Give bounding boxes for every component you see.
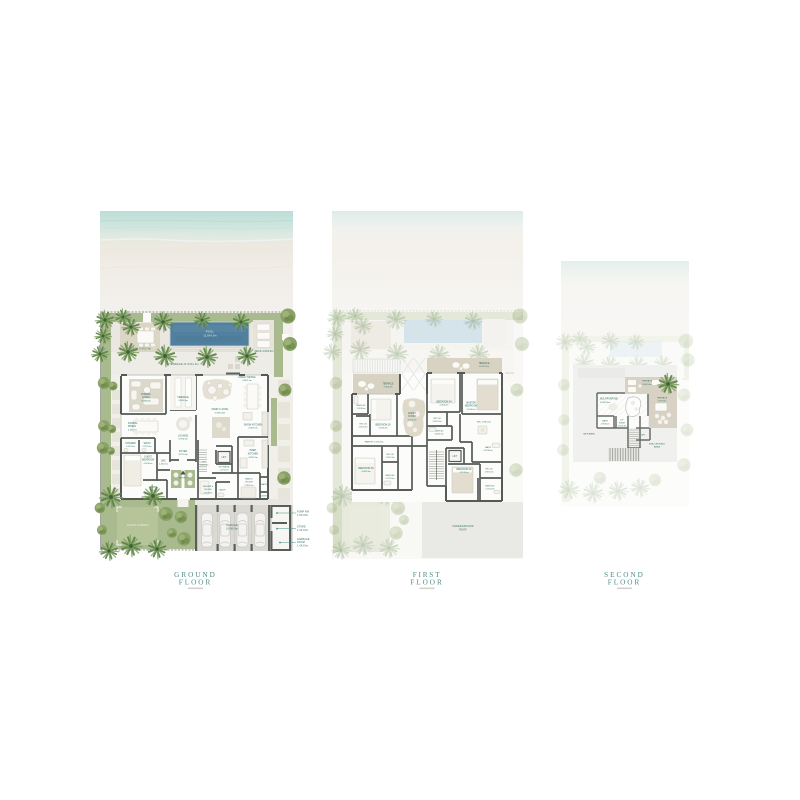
svg-text:2.2X2.8m: 2.2X2.8m [204, 492, 213, 494]
svg-text:1.9X3.0m: 1.9X3.0m [601, 424, 610, 426]
svg-text:3.9X5.8m: 3.9X5.8m [178, 400, 188, 402]
svg-text:POWDER: POWDER [125, 443, 136, 445]
svg-text:FLOOR: FLOOR [608, 579, 642, 587]
svg-text:FAMILY: FAMILY [408, 412, 416, 415]
svg-text:FOYER: FOYER [179, 450, 188, 453]
svg-text:LNDRY: LNDRY [260, 496, 268, 498]
svg-text:TERRACE: TERRACE [479, 362, 490, 365]
svg-text:7.0X2.3m: 7.0X2.3m [384, 387, 393, 389]
svg-text:BEDROOM 05: BEDROOM 05 [358, 468, 374, 470]
svg-text:BATH 02: BATH 02 [486, 485, 495, 488]
svg-text:POOL: POOL [206, 330, 215, 334]
svg-text:1.3X1.8m: 1.3X1.8m [297, 529, 308, 532]
svg-text:FIRST: FIRST [413, 571, 442, 579]
svg-text:2.2X1.6m: 2.2X1.6m [143, 446, 152, 448]
svg-text:AREA: AREA [654, 446, 660, 449]
svg-text:13.0X4.8m: 13.0X4.8m [600, 402, 610, 404]
svg-text:5.5X6.0m: 5.5X6.0m [467, 409, 476, 411]
svg-text:DINING: DINING [128, 426, 136, 428]
svg-text:5.9X11.8m: 5.9X11.8m [215, 412, 226, 414]
svg-text:MASTER: MASTER [466, 402, 476, 405]
svg-text:BEDROOM 04: BEDROOM 04 [436, 402, 452, 404]
svg-text:4.3X4.0m: 4.3X4.0m [440, 405, 449, 407]
svg-text:TERRACE: TERRACE [383, 383, 394, 386]
svg-text:TERRACE: TERRACE [657, 397, 668, 400]
svg-text:LIFT: LIFT [641, 435, 646, 437]
svg-text:BATH: BATH [602, 420, 608, 423]
svg-text:BATH: BATH [485, 446, 491, 449]
svg-text:KITCHEN: KITCHEN [248, 452, 259, 455]
svg-text:WIC 05: WIC 05 [386, 454, 394, 456]
svg-text:ENTRY: ENTRY [179, 478, 187, 480]
svg-text:FLOOR: FLOOR [410, 579, 444, 587]
svg-text:FRONT GARDEN: FRONT GARDEN [127, 524, 149, 527]
svg-text:5.9X6.8m: 5.9X6.8m [141, 400, 151, 402]
svg-text:2.7X1.9m: 2.7X1.9m [386, 478, 395, 480]
svg-text:4.0X4.6m: 4.0X4.6m [144, 463, 153, 465]
svg-text:10.7X2.5m: 10.7X2.5m [479, 366, 489, 368]
svg-text:4.0X4.3m: 4.0X4.3m [362, 471, 371, 473]
svg-text:BEDROOM 03: BEDROOM 03 [375, 425, 391, 427]
svg-text:4.3X6.3m: 4.3X6.3m [379, 428, 388, 430]
svg-text:FAMILY LIVING: FAMILY LIVING [212, 408, 229, 411]
svg-text:WIC 02: WIC 02 [485, 469, 493, 471]
svg-text:LIVING: LIVING [142, 396, 150, 399]
svg-text:2.4X3.1m: 2.4X3.1m [245, 485, 254, 487]
svg-text:TERRACE: TERRACE [642, 380, 653, 383]
svg-text:WASH: WASH [144, 442, 151, 445]
svg-text:3.7X6.3m: 3.7X6.3m [178, 439, 188, 441]
svg-text:BATH: BATH [220, 489, 226, 492]
svg-text:4.9X5.4m: 4.9X5.4m [248, 457, 258, 459]
svg-text:1.9X1.3m: 1.9X1.3m [386, 457, 395, 459]
svg-text:1.6X2.3m: 1.6X2.3m [618, 426, 627, 428]
svg-text:TERRACE: TERRACE [177, 396, 189, 399]
svg-text:FLOOR: FLOOR [179, 579, 213, 587]
svg-text:PANTRY 1.0X1.8m: PANTRY 1.0X1.8m [365, 441, 384, 444]
svg-text:ROOM: ROOM [408, 416, 415, 418]
svg-text:4.5X3.0m: 4.5X3.0m [484, 450, 493, 452]
svg-text:PWDR: PWDR [619, 423, 626, 425]
svg-text:2.0X1.6m: 2.0X1.6m [126, 446, 135, 448]
svg-text:4.8X2.2m: 4.8X2.2m [242, 380, 252, 382]
svg-text:ROOF: ROOF [459, 529, 467, 532]
svg-text:GUEST: GUEST [144, 457, 153, 459]
svg-text:GROUND: GROUND [174, 571, 217, 579]
svg-text:WIC 04: WIC 04 [433, 418, 441, 420]
svg-text:WIC 1.9X6.1m: WIC 1.9X6.1m [477, 422, 491, 424]
svg-text:1.4X2.1m: 1.4X2.1m [159, 464, 168, 466]
svg-text:GARAGE: GARAGE [226, 524, 238, 527]
svg-text:LIFT: LIFT [453, 456, 458, 458]
svg-text:DECK 4.0X4.0m: DECK 4.0X4.0m [255, 350, 274, 353]
svg-text:STORAGE: STORAGE [219, 466, 230, 469]
svg-text:4.4X7.7m: 4.4X7.7m [128, 429, 137, 431]
svg-text:1.9X4.6m: 1.9X4.6m [357, 408, 366, 410]
svg-text:4.1X4.0m: 4.1X4.0m [460, 472, 469, 474]
svg-text:SECOND: SECOND [604, 571, 645, 579]
svg-text:1.4X3.6m: 1.4X3.6m [297, 545, 308, 548]
svg-text:1.0X1.8m: 1.0X1.8m [297, 514, 308, 517]
svg-text:1.9X2.3m: 1.9X2.3m [359, 427, 368, 429]
svg-text:12.8X4.0m: 12.8X4.0m [203, 334, 216, 337]
svg-text:3.7X1.8m: 3.7X1.8m [178, 454, 188, 456]
svg-text:LOUNGE: LOUNGE [178, 435, 189, 438]
svg-text:UNDERGROUND: UNDERGROUND [452, 525, 473, 528]
svg-text:TERRACE 21.6X11.3m: TERRACE 21.6X11.3m [169, 363, 199, 366]
svg-text:DRIVER'S: DRIVER'S [203, 486, 214, 488]
svg-text:3.7X9.3m: 3.7X9.3m [408, 419, 417, 421]
svg-text:MEP AREA: MEP AREA [583, 433, 595, 436]
svg-text:MULTIPURPOSE: MULTIPURPOSE [600, 399, 618, 401]
svg-text:LIFT: LIFT [222, 457, 227, 459]
svg-text:1.7X1.5m: 1.7X1.5m [220, 470, 229, 472]
svg-text:ROOM: ROOM [205, 489, 212, 491]
svg-text:3.0X2.3m: 3.0X2.3m [435, 434, 444, 436]
svg-text:10.8X3.0m: 10.8X3.0m [642, 384, 652, 386]
svg-text:BATH: BATH [261, 483, 267, 486]
svg-text:2.7X1.9m: 2.7X1.9m [486, 489, 495, 491]
svg-text:4.9X2.5m: 4.9X2.5m [248, 428, 258, 430]
svg-text:MAID'S: MAID'S [245, 478, 253, 481]
svg-text:5.9X7.8m: 5.9X7.8m [658, 401, 667, 403]
svg-text:BATH 03: BATH 03 [357, 404, 366, 407]
svg-text:BEDROOM: BEDROOM [142, 460, 154, 462]
svg-text:WIC 03: WIC 03 [359, 424, 367, 426]
svg-text:10.9X6.9m: 10.9X6.9m [226, 529, 238, 531]
svg-text:2.6X1.3m: 2.6X1.3m [433, 421, 442, 423]
svg-text:BATH 05: BATH 05 [386, 474, 395, 477]
svg-text:FAMILY DINING: FAMILY DINING [238, 376, 255, 379]
svg-text:WIC: WIC [161, 461, 166, 463]
svg-text:FORMAL: FORMAL [128, 422, 138, 425]
svg-text:INACCESSIBLE: INACCESSIBLE [649, 443, 665, 446]
svg-text:1.9X1.5m: 1.9X1.5m [485, 472, 494, 474]
svg-text:ROOM: ROOM [246, 482, 253, 484]
svg-text:BEDROOM: BEDROOM [465, 406, 477, 408]
svg-text:SHOW KITCHEN: SHOW KITCHEN [244, 424, 263, 427]
svg-text:BEDROOM 02: BEDROOM 02 [456, 469, 472, 471]
